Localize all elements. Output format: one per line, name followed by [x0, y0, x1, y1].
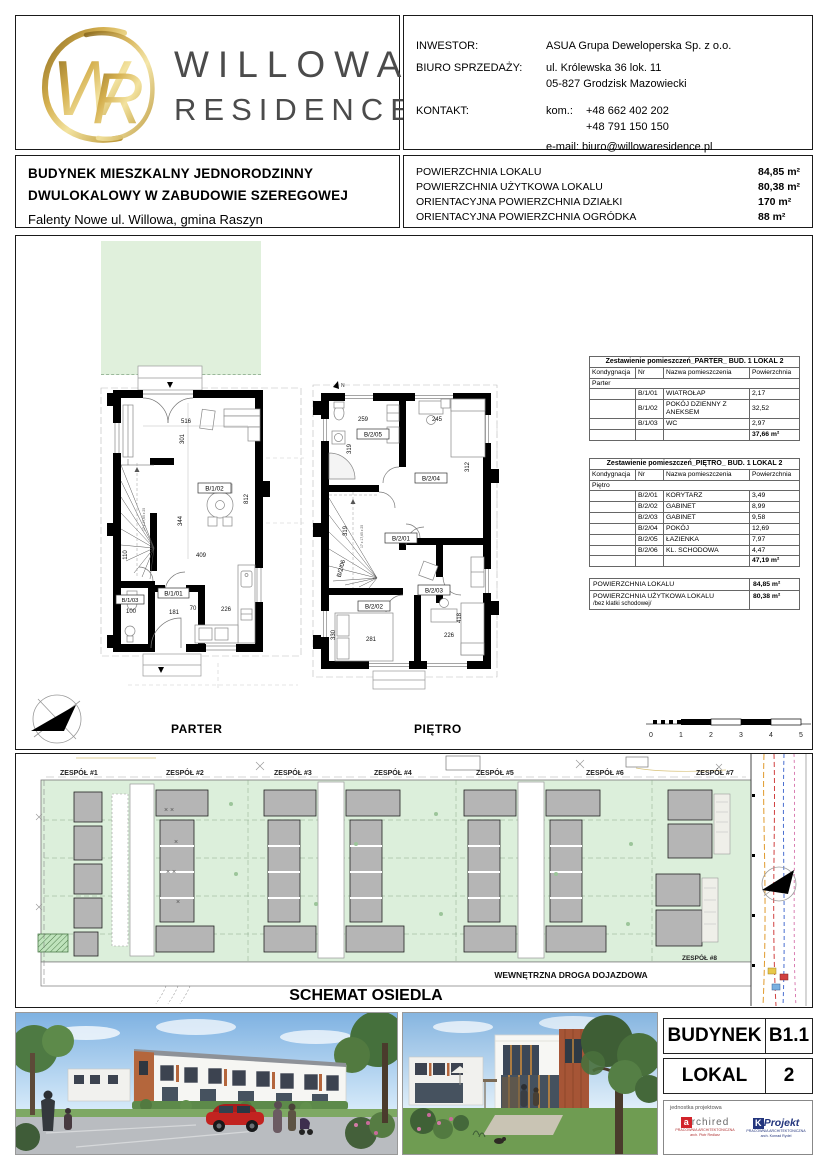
svg-text:B/2/05: B/2/05	[364, 432, 382, 439]
svg-text:ZESPÓŁ #4: ZESPÓŁ #4	[374, 768, 412, 777]
budynek-cell: BUDYNEK B1.1	[663, 1018, 813, 1054]
svg-text:ZESPÓŁ #1: ZESPÓŁ #1	[60, 768, 98, 777]
scale-labels: 0 1 2 3 4 5	[649, 732, 803, 739]
svg-text:301: 301	[180, 433, 186, 444]
lokal-value: 2	[784, 1065, 795, 1087]
svg-text:0: 0	[649, 732, 653, 739]
phone-2-value: +48 791 150 150	[586, 121, 669, 133]
parter-interior-walls	[121, 458, 205, 652]
siteplan-panel: ZESPÓŁ #1 ZESPÓŁ #2 ZESPÓŁ #3 ZESPÓŁ #4 …	[15, 753, 813, 1008]
investor-row: INWESTOR: ASUA Grupa Deweloperska Sp. z …	[416, 40, 804, 54]
svg-text:812: 812	[244, 493, 250, 504]
svg-text:ZESPÓŁ #5: ZESPÓŁ #5	[476, 768, 514, 777]
parter-group-row: Parter	[590, 378, 800, 389]
pietro-label: PIĘTRO	[414, 722, 462, 736]
parter-room-table: Zestawienie pomieszczeń_PARTER_ BUD. 1 L…	[589, 356, 800, 441]
table-row: B/2/01KORYTARZ3,49	[590, 491, 800, 502]
parter-total: 37,66 m²	[750, 429, 800, 440]
email-value: biuro@willowaresidence.pl	[582, 141, 712, 153]
budynek-label: BUDYNEK	[668, 1025, 762, 1047]
areas-panel: POWIERZCHNIA LOKALU 84,85 m² POWIERZCHNI…	[403, 155, 813, 228]
scale-bar: 0 1 2 3 4 5	[641, 704, 816, 746]
design-unit-label: jednostka projektowa	[670, 1105, 722, 1111]
investor-value: ASUA Grupa Deweloperska Sp. z o.o.	[546, 40, 731, 54]
area-row-uzytkowa: POWIERZCHNIA UŻYTKOWA LOKALU 80,38 m²	[416, 180, 812, 195]
building-location: Falenty Nowe ul. Willowa, gmina Raszyn	[28, 212, 399, 227]
svg-text:ZESPÓŁ #7: ZESPÓŁ #7	[696, 768, 734, 777]
table-row: B/2/04POKÓJ12,69	[590, 523, 800, 534]
phone-2: +48 791 150 150	[546, 121, 669, 135]
area-label: ORIENTACYJNA POWIERZCHNIA DZIAŁKI	[416, 196, 622, 208]
svg-text:ZESPÓŁ #2: ZESPÓŁ #2	[166, 768, 204, 777]
phone-1-value: +48 662 402 202	[586, 105, 669, 117]
archired-name: rchired	[692, 1117, 730, 1128]
design-unit-cell: jednostka projektowa archired PRACOWNIA …	[663, 1100, 813, 1155]
pietro-stair-note: 17 x 17,65 x 25	[360, 525, 364, 548]
summary-label-1: POWIERZCHNIA LOKALU	[590, 579, 750, 591]
table-row: B/1/01WIATROŁAP2,17	[590, 389, 800, 400]
pietro-floor-plan: 17 x 17,65 x 25 259 245 319	[311, 373, 501, 703]
svg-text:× ×: × ×	[166, 869, 176, 876]
area-row-lokal: POWIERZCHNIA LOKALU 84,85 m²	[416, 165, 812, 180]
svg-text:3: 3	[739, 732, 743, 739]
svg-text:ZESPÓŁ #8: ZESPÓŁ #8	[682, 953, 717, 962]
lokal-label: LOKAL	[682, 1065, 747, 1087]
road-label: WEWNĘTRZNA DROGA DOJAZDOWA	[494, 970, 647, 980]
siteplan-drawing: ZESPÓŁ #1 ZESPÓŁ #2 ZESPÓŁ #3 ZESPÓŁ #4 …	[16, 754, 811, 1006]
building-title-2: DWULOKALOWY W ZABUDOWIE SZEREGOWEJ	[28, 188, 399, 203]
col-nazwa: Nazwa pomieszczenia	[664, 368, 750, 379]
svg-text:418: 418	[457, 612, 463, 623]
siteplan-title: SCHEMAT OSIEDLA	[289, 987, 443, 1004]
pietro-room-table: Zestawienie pomieszczeń_PIĘTRO_ BUD. 1 L…	[589, 458, 800, 567]
pietro-table-title: Zestawienie pomieszczeń_PIĘTRO_ BUD. 1 L…	[590, 459, 800, 470]
monogram-r: R	[92, 59, 144, 139]
area-label: POWIERZCHNIA UŻYTKOWA LOKALU	[416, 181, 603, 193]
pietro-total: 47,19 m²	[750, 556, 800, 567]
offer-sheet: W R WILLOWA RESIDENCE INWESTOR: ASUA Gru…	[0, 0, 828, 1171]
svg-text:344: 344	[178, 515, 184, 526]
brand-name: WILLOWA RESIDENCE	[174, 44, 418, 128]
render-photo-2-art	[403, 1013, 657, 1154]
phone-label: kom.:	[546, 105, 586, 119]
brand-line1: WILLOWA	[174, 44, 418, 86]
render-photo-1-art	[16, 1013, 397, 1154]
area-label: ORIENTACYJNA POWIERZCHNIA OGRÓDKA	[416, 211, 636, 223]
header-logo-panel: W R WILLOWA RESIDENCE	[15, 15, 400, 150]
svg-text:ZESPÓŁ #6: ZESPÓŁ #6	[586, 768, 624, 777]
table-row: B/2/06KL. SCHODOWA4,47	[590, 545, 800, 556]
col-kondygnacja: Kondygnacja	[590, 368, 636, 379]
building-info-panel: BUDYNEK MIESZKALNY JEDNORODZINNY DWULOKA…	[15, 155, 400, 228]
col-nr: Nr	[636, 368, 664, 379]
lokal-cell: LOKAL 2	[663, 1058, 813, 1094]
col-powierzchnia: Powierzchnia	[750, 368, 800, 379]
summary-value-1: 84,85 m²	[750, 579, 800, 591]
svg-text:516: 516	[181, 419, 192, 425]
phone-1: kom.:+48 662 402 202	[546, 105, 669, 119]
svg-text:4: 4	[769, 732, 773, 739]
svg-text:B/2/06: B/2/06	[336, 559, 348, 579]
parter-stair-note: 17 x 17,65 x 25	[142, 508, 146, 531]
svg-text:226: 226	[221, 607, 232, 613]
wr-monogram-logo: W R	[24, 19, 174, 147]
kprojekt-logo: KProjekt PRACOWNIA ARCHITEKTONICZNA arch…	[746, 1117, 806, 1138]
table-row: B/2/02GABINET8,99	[590, 502, 800, 513]
svg-text:B/1/01: B/1/01	[164, 591, 183, 598]
svg-text:70: 70	[190, 606, 197, 612]
svg-text:312: 312	[465, 461, 471, 472]
parter-stairs	[121, 459, 154, 579]
budynek-value: B1.1	[769, 1025, 809, 1047]
render-photo-1	[15, 1012, 398, 1155]
svg-text:281: 281	[366, 637, 377, 643]
svg-text:319: 319	[343, 525, 349, 536]
archired-sub2: arch. Piotr Redlarz	[674, 1133, 736, 1138]
svg-text:B/1/03: B/1/03	[122, 598, 139, 604]
table-row: B/1/03WC2,97	[590, 418, 800, 429]
svg-text:×: ×	[176, 899, 180, 906]
parter-floor-plan: 17 x 17,65 x 25	[98, 363, 308, 693]
compass-icon	[24, 691, 86, 753]
email-label: e-mail:	[546, 141, 582, 155]
svg-text:ZESPÓŁ #3: ZESPÓŁ #3	[274, 768, 312, 777]
pietro-porch-bottom	[373, 671, 425, 689]
svg-text:B/2/03: B/2/03	[425, 588, 443, 595]
internal-road: WEWNĘTRZNA DROGA DOJAZDOWA	[41, 962, 751, 986]
header-contact-panel: INWESTOR: ASUA Grupa Deweloperska Sp. z …	[403, 15, 813, 150]
kprojekt-sub2: arch. Konrad Rydel	[746, 1134, 806, 1139]
svg-text:259: 259	[358, 417, 369, 423]
svg-text:181: 181	[169, 610, 180, 616]
svg-text:5: 5	[799, 732, 803, 739]
svg-text:× ×: × ×	[164, 807, 174, 814]
archired-sub1: PRACOWNIA ARCHITEKTONICZNA	[674, 1128, 736, 1133]
summary-value-2: 80,38 m²	[750, 591, 800, 610]
svg-text:409: 409	[196, 553, 207, 559]
svg-text:2: 2	[709, 732, 713, 739]
svg-text:1: 1	[679, 732, 683, 739]
brand-line2: RESIDENCE	[174, 92, 418, 128]
svg-text:B/2/01: B/2/01	[392, 536, 410, 543]
svg-text:N: N	[341, 383, 345, 389]
building-title-1: BUDYNEK MIESZKALNY JEDNORODZINNY	[28, 166, 399, 181]
office-address-2: 05-827 Grodzisk Mazowiecki	[546, 78, 687, 92]
contact-row: KONTAKT: kom.:+48 662 402 202	[416, 105, 804, 119]
parter-entry-porch-top	[138, 366, 202, 390]
kprojekt-mark: K	[753, 1118, 764, 1129]
svg-text:×: ×	[174, 839, 178, 846]
site-compass-icon	[762, 867, 796, 901]
email: e-mail:biuro@willowaresidence.pl	[546, 141, 712, 155]
svg-text:319: 319	[347, 443, 353, 454]
svg-text:245: 245	[432, 417, 443, 423]
svg-text:B/2/02: B/2/02	[365, 604, 383, 611]
pietro-group-row: Piętro	[590, 480, 800, 491]
archired-mark: a	[681, 1117, 692, 1128]
summary-table: POWIERZCHNIA LOKALU 84,85 m² POWIERZCHNI…	[589, 578, 800, 610]
kprojekt-name: Projekt	[764, 1117, 800, 1129]
kprojekt-sub1: PRACOWNIA ARCHITEKTONICZNA	[746, 1129, 806, 1134]
office-address-1: ul. Królewska 36 lok. 11	[546, 62, 661, 76]
garden-area	[101, 241, 261, 375]
office-row: BIURO SPRZEDAŻY: ul. Królewska 36 lok. 1…	[416, 62, 804, 76]
area-value: 80,38 m²	[758, 180, 800, 195]
parter-table-title: Zestawienie pomieszczeń_PARTER_ BUD. 1 L…	[590, 357, 800, 368]
area-row-ogrodek: ORIENTACYJNA POWIERZCHNIA OGRÓDKA 88 m²	[416, 210, 812, 225]
parter-label: PARTER	[171, 722, 222, 736]
investor-label: INWESTOR:	[416, 40, 478, 52]
svg-text:330: 330	[331, 629, 337, 640]
svg-text:B/1/02: B/1/02	[205, 486, 224, 493]
area-value: 88 m²	[758, 210, 785, 225]
svg-text:226: 226	[444, 633, 455, 639]
area-row-dzialka: ORIENTACYJNA POWIERZCHNIA DZIAŁKI 170 m²	[416, 195, 812, 210]
archired-logo: archired PRACOWNIA ARCHITEKTONICZNA arch…	[674, 1117, 736, 1137]
table-row: B/2/05ŁAZIENKA7,97	[590, 534, 800, 545]
parter-doors	[139, 567, 185, 648]
parter-entry-porch-bottom	[143, 654, 201, 676]
svg-text:110: 110	[123, 550, 129, 560]
table-row: B/2/03GABINET9,58	[590, 513, 800, 524]
svg-text:B/2/04: B/2/04	[422, 476, 440, 483]
office-label: BIURO SPRZEDAŻY:	[416, 62, 522, 74]
render-photo-2	[402, 1012, 658, 1155]
summary-label-2: POWIERZCHNIA UŻYTKOWA LOKALU/bez klatki …	[590, 591, 750, 610]
area-label: POWIERZCHNIA LOKALU	[416, 166, 541, 178]
svg-text:100: 100	[126, 609, 137, 615]
floorplan-panel: 17 x 17,65 x 25	[15, 235, 813, 750]
area-value: 170 m²	[758, 195, 791, 210]
area-value: 84,85 m²	[758, 165, 800, 180]
table-row: B/1/02POKÓJ DZIENNY Z ANEKSEM32,52	[590, 400, 800, 419]
contact-label: KONTAKT:	[416, 105, 469, 117]
